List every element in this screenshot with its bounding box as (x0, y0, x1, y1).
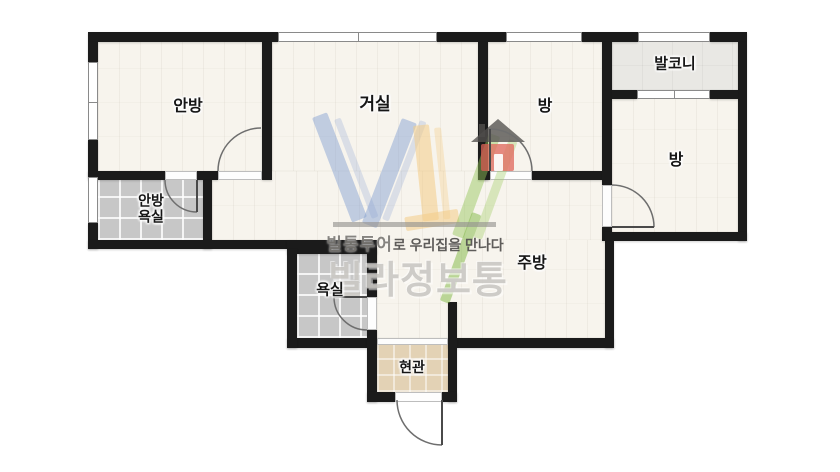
room-label-entry: 현관 (399, 360, 425, 376)
room-label-master-bedroom: 안방 (173, 98, 202, 116)
bathroom-door-arc (334, 297, 367, 330)
front-door-arc (397, 400, 442, 445)
room-label-bathroom: 욕실 (316, 283, 344, 300)
room-label-room-center: 방 (538, 98, 553, 116)
room-label-kitchen: 주방 (517, 255, 546, 273)
door-swings-layer (0, 0, 840, 472)
floor-plan: 빌통투어로 우리집을 만나다 빌라정보통 안방거실방발코니방안방 욕실욕실주방현… (0, 0, 840, 472)
room-label-living-room: 거실 (359, 94, 390, 113)
room-label-master-bath: 안방 욕실 (138, 193, 164, 224)
master-bedroom-door-arc (218, 128, 261, 171)
room-center-door-arc (490, 129, 532, 171)
room-label-room-right: 방 (669, 152, 684, 170)
room-right-door-arc (612, 185, 654, 227)
room-label-balcony: 발코니 (654, 57, 695, 74)
master-bath-door-arc (165, 180, 197, 212)
